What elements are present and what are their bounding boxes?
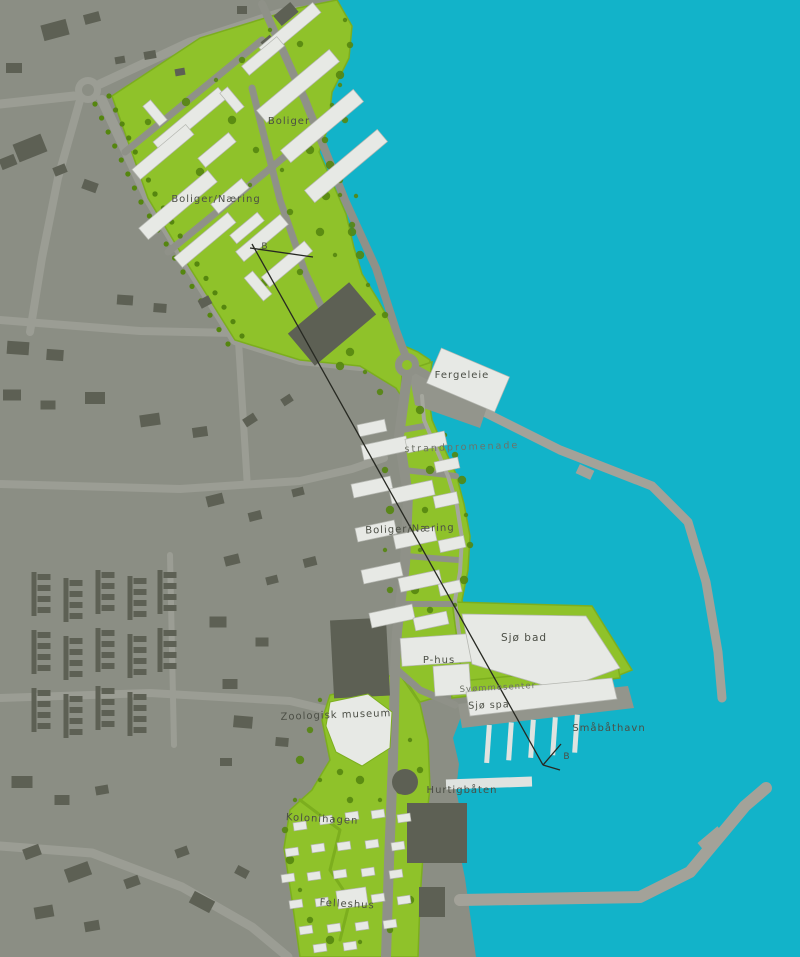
map-canvas: BoligerBoliger/NæringBFergeleiestrandpro… (0, 0, 800, 957)
label-fergeleie: Fergeleie (435, 370, 490, 381)
label-hurtigbaaten: Hurtigbåten (427, 783, 498, 796)
label-smaabaathavn: Småbåthavn (572, 721, 645, 734)
label-seksjon-b-nord: B (261, 242, 268, 252)
label-boliger: Boliger (268, 116, 310, 127)
label-p-hus: P-hus (423, 655, 455, 666)
label-sjoe-spa: Sjø spa (468, 699, 510, 711)
label-boliger-naering-nord: Boliger/Næring (171, 194, 260, 205)
label-sjoe-bad: Sjø bad (501, 632, 547, 644)
label-seksjon-b-soer: B (563, 752, 570, 762)
site-plan-map: BoligerBoliger/NæringBFergeleiestrandpro… (0, 0, 800, 957)
